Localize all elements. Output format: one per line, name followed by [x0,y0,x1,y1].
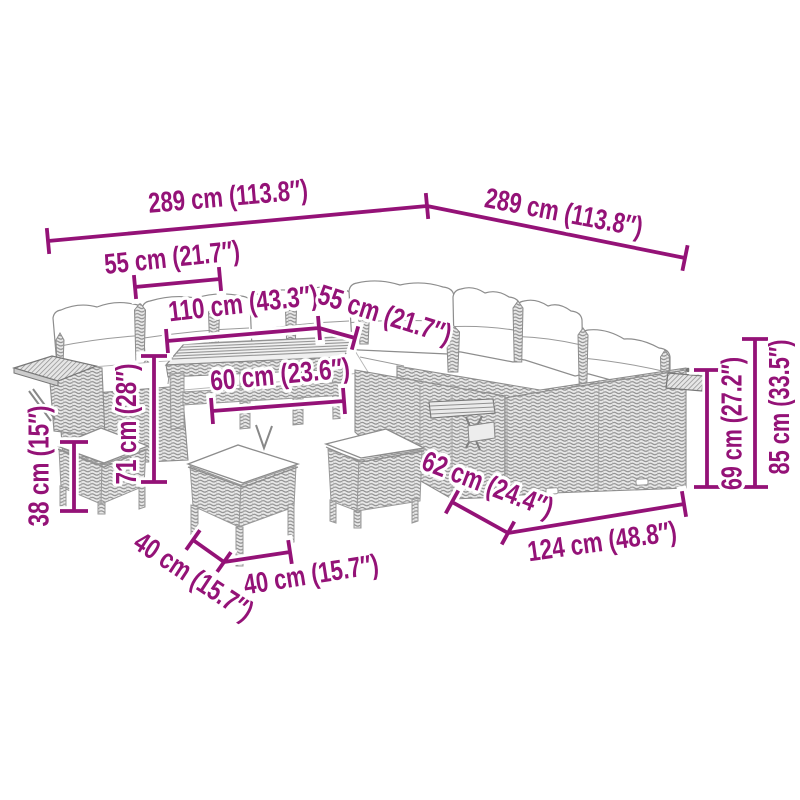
svg-text:38 cm (15″): 38 cm (15″) [24,406,56,527]
svg-text:69 cm (27.2″): 69 cm (27.2″) [717,357,749,490]
svg-text:85 cm (33.5″): 85 cm (33.5″) [764,340,796,475]
svg-text:71 cm (28″): 71 cm (28″) [111,364,143,485]
